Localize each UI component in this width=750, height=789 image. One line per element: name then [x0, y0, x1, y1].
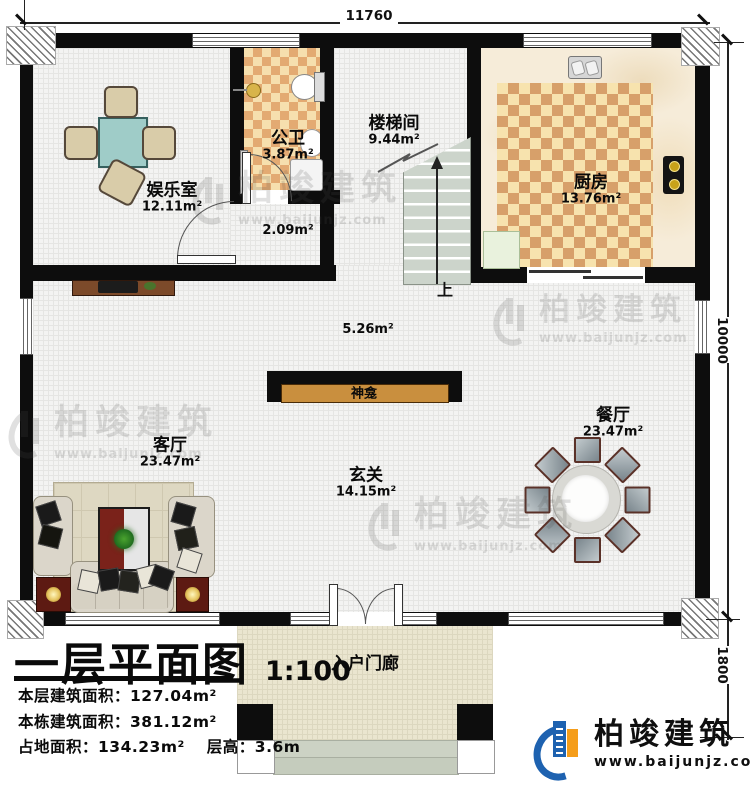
window-top-kitchen	[523, 34, 652, 47]
kitchen-sliding-door	[527, 267, 645, 283]
room-area: 5.26m²	[342, 323, 393, 337]
stat-value: 127.04m²	[130, 687, 217, 705]
porch-step	[273, 757, 459, 775]
end-table	[176, 577, 209, 612]
room-area: 13.76m²	[561, 192, 621, 206]
sliding-door-panel	[583, 276, 643, 279]
window-left	[20, 298, 33, 355]
bathroom-label: 公卫 3.87m²	[262, 130, 313, 161]
room-area: 3.87m²	[262, 148, 313, 162]
entry-door-leaf-left	[329, 584, 338, 626]
window-right	[695, 300, 710, 354]
table-lamp	[185, 587, 200, 602]
stat-value: 381.12m²	[130, 713, 217, 731]
burner	[669, 179, 680, 190]
corner-column-top-right	[681, 27, 720, 66]
chair	[104, 86, 138, 118]
kitchen-label: 厨房 13.76m²	[561, 174, 621, 205]
plan-stats: 本层建筑面积：127.04m² 本栋建筑面积：381.12m² 占地面积：134…	[18, 684, 300, 761]
company-name: 柏竣建筑	[594, 720, 750, 750]
plan-scale: 1:100	[265, 656, 351, 687]
stat-label: 本栋建筑面积：	[18, 713, 130, 731]
washing-machine	[290, 159, 323, 191]
dining-chair	[574, 537, 601, 563]
floor-plan-canvas: 神龛	[0, 0, 750, 789]
room-name: 玄关	[336, 467, 396, 485]
entry-door-leaf-right	[394, 584, 403, 626]
window-top-left	[192, 34, 300, 47]
sliding-door-panel	[529, 270, 591, 273]
dimension-ext-line	[706, 619, 740, 620]
stove	[663, 156, 684, 194]
room-name: 娱乐室	[142, 182, 202, 200]
sink-bowl	[570, 60, 585, 77]
stat-label: 占地面积：	[18, 738, 98, 756]
window-bottom-living	[65, 613, 220, 625]
logo-building-orange	[567, 729, 578, 757]
dimension-tick	[697, 13, 709, 25]
chair	[142, 126, 176, 160]
entertainment-label: 娱乐室 12.11m²	[142, 182, 202, 213]
stat-line: 本层建筑面积：127.04m²	[18, 684, 300, 710]
dining-label: 餐厅 23.47m²	[583, 407, 643, 438]
room-name: 客厅	[140, 437, 200, 455]
stat-value: 3.6m	[255, 738, 301, 756]
toilet-tank	[314, 72, 325, 102]
dimension-line-right	[727, 42, 729, 740]
room-area: 14.15m²	[336, 485, 396, 499]
stair-direction-line	[436, 168, 438, 284]
porch-column-right	[457, 704, 493, 740]
shrine-text: 神龛	[351, 387, 377, 402]
logo-building-blue	[553, 721, 566, 757]
dimension-tick	[15, 13, 27, 25]
wall-living-north	[20, 265, 336, 281]
company-website: www.baijunjz.com	[594, 754, 750, 770]
dining-chair	[625, 487, 651, 514]
room-name: 公卫	[262, 130, 313, 148]
stairs-up-text: 上	[437, 281, 453, 300]
room-name: 厨房	[561, 174, 621, 192]
rear-hall-area-label: 5.26m²	[342, 323, 393, 337]
stat-label: 层高：	[207, 738, 255, 756]
room-name: 餐厅	[583, 407, 643, 425]
porch-sidelight-left	[290, 613, 332, 625]
shrine-label: 神龛	[351, 385, 377, 402]
bathroom-door-leaf	[242, 152, 251, 204]
title-underline	[14, 676, 233, 681]
stair-arrow-up-icon	[431, 156, 443, 169]
stat-value: 134.23m²	[98, 738, 185, 756]
coffee-table	[98, 507, 150, 571]
stat-label: 本层建筑面积：	[18, 687, 130, 705]
company-logo: 柏竣建筑 www.baijunjz.com	[534, 716, 750, 774]
desk-plant	[144, 282, 156, 290]
room-area: 23.47m²	[140, 455, 200, 469]
hallway-area-label: 2.09m²	[262, 224, 313, 238]
pillow	[174, 526, 199, 551]
window-bottom-dining	[508, 613, 664, 625]
kitchen-cabinet	[483, 231, 520, 269]
end-table	[36, 577, 71, 612]
burner	[669, 161, 680, 172]
laptop	[98, 281, 138, 293]
dimension-top-value: 11760	[340, 8, 398, 24]
stairwell-label: 楼梯间 9.44m²	[368, 115, 419, 146]
plant-icon	[114, 529, 134, 549]
corner-column-top-left	[6, 26, 56, 65]
room-area: 9.44m²	[368, 133, 419, 147]
dining-chair	[574, 437, 601, 463]
company-logo-icon	[534, 716, 586, 774]
living-label: 客厅 23.47m²	[140, 437, 200, 468]
room-area: 2.09m²	[262, 224, 313, 238]
dining-chair	[525, 487, 551, 514]
room-area: 23.47m²	[583, 425, 643, 439]
shower-head	[246, 83, 261, 98]
entertainment-door-leaf	[177, 255, 236, 264]
porch-sidelight-right	[400, 613, 437, 625]
dimension-right-lower-value: 1800	[714, 646, 730, 684]
dining-table-top	[562, 475, 609, 522]
sink-bowl	[584, 60, 599, 77]
table-lamp	[46, 587, 61, 602]
foyer-label: 玄关 14.15m²	[336, 467, 396, 498]
shower-arm	[233, 89, 247, 91]
stairs-up-label: 上	[437, 283, 453, 300]
porch-column-base-right	[457, 740, 495, 774]
kitchen-sink	[568, 56, 602, 79]
game-table	[98, 117, 148, 168]
chair	[64, 126, 98, 160]
dimension-right-value: 10000	[714, 317, 730, 363]
room-name: 楼梯间	[368, 115, 419, 133]
stat-line: 占地面积：134.23m²层高：3.6m	[18, 735, 300, 761]
stat-line: 本栋建筑面积：381.12m²	[18, 710, 300, 736]
room-area: 12.11m²	[142, 200, 202, 214]
